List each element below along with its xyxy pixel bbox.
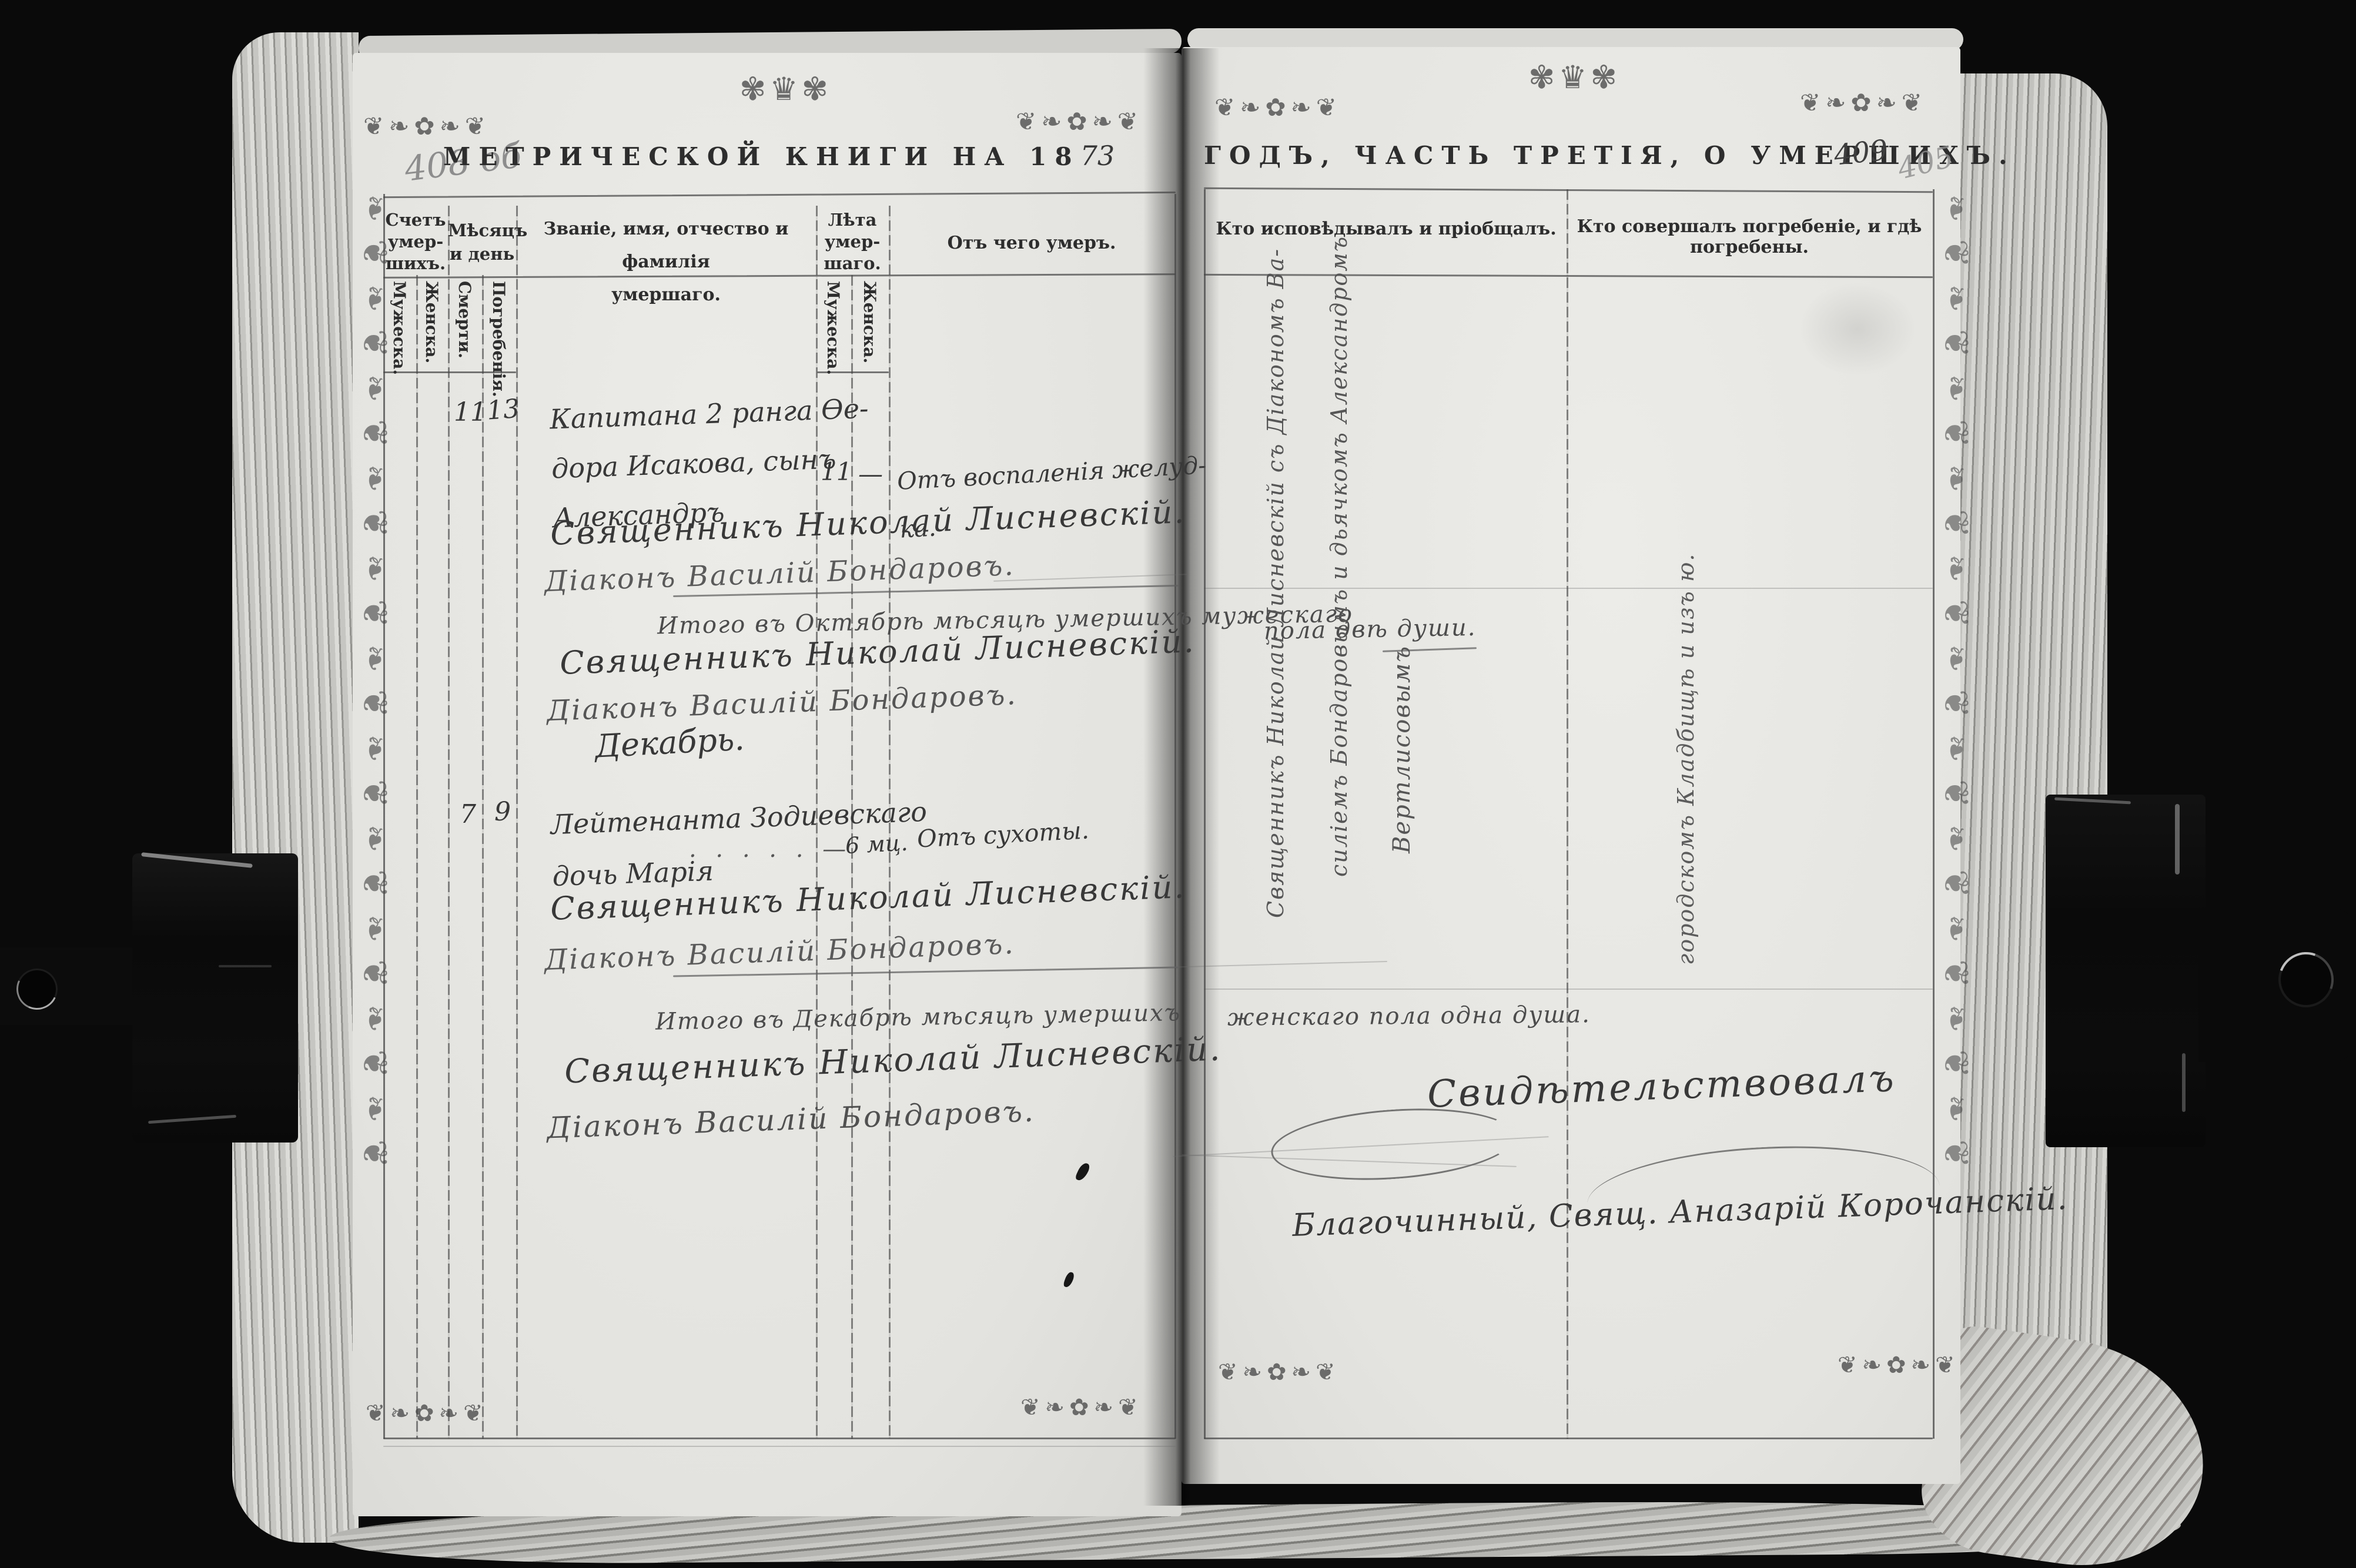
month-label-december: Декабрь. (594, 720, 745, 765)
summary-december-right: женскаго пола одна душа. (1227, 1001, 1591, 1031)
confession-note-line2: силіемъ Бондаровымъ и дьячкомъ Александр… (1326, 236, 1352, 877)
left-table-line-count-month (448, 206, 450, 1439)
col-header-count: Счетъ умер- шихъ. (383, 209, 448, 274)
right-table-bottom-rule (1204, 1438, 1933, 1439)
ornament-corner-bottom-right-right-page-icon: ❦❧✿❧❦ (1838, 1352, 1960, 1379)
entry1-burial-day: 13 (486, 394, 517, 425)
right-table-row-rule-2 (1204, 989, 1933, 990)
right-table-row-rule-1 (1204, 588, 1933, 589)
left-clamp-body (132, 853, 298, 1143)
col-header-cause: Отъ чего умеръ. (889, 233, 1174, 253)
col-header-age: Лѣта умер- шаго. (816, 209, 889, 274)
col-header-burial: Кто совершалъ погребеніе, и гдѣ погребен… (1575, 216, 1923, 257)
ornament-crown-left-icon: ✾♛✾ (739, 71, 832, 108)
book-gutter-shadow (1143, 48, 1220, 1506)
left-table-line-count-split (416, 275, 418, 1439)
metric-book-scan: ❦❧✿❧❦ ✾♛✾ ❦❧✿❧❦ ❧❦❧❦❧❦❧❦❧❦❧❦❧❦❧❦❧❦❧❦❧❦ ❦… (0, 0, 2356, 1568)
entry2-death-day: 7 (454, 799, 482, 829)
sub-header-count-female: Женска. (422, 281, 441, 363)
left-table-bottom-rule (383, 1438, 1176, 1439)
entry1-age-male: 11 (821, 457, 850, 486)
confession-note-line1: Священникъ Николай Лисневскій съ Діаконо… (1263, 248, 1289, 918)
bleedthrough-smudge (1799, 282, 1916, 376)
entry2-age-female: 6 мц. (845, 829, 916, 859)
right-clamp-glint-1 (2175, 804, 2180, 875)
ornament-corner-top-left-icon: ❦❧✿❧❦ (363, 112, 490, 140)
sub-header-age-female: Женска. (860, 281, 879, 363)
summary-october-right: пола двѣ души. (1264, 614, 1477, 645)
right-page-number-ink: 409 (1832, 133, 1889, 172)
confession-note-line3: Вертлисовымъ (1388, 645, 1415, 853)
col-header-name: Званіе, имя, отчество и фамилія умершаго… (516, 213, 816, 311)
ornament-corner-top-right-right-page-icon: ❦❧✿❧❦ (1800, 88, 1927, 117)
sub-header-count-male: Мужеска. (390, 281, 409, 375)
right-page-title: ГОДЪ, ЧАСТЬ ТРЕТІЯ, О УМЕРШИХЪ. (1204, 141, 1933, 170)
ornament-crown-right-icon: ✾♛✾ (1528, 59, 1621, 96)
sub-header-month-death: Смерти. (455, 281, 474, 359)
ornament-corner-bottom-right-icon: ❦❧✿❧❦ (1020, 1394, 1143, 1421)
entry2-burial-day: 9 (488, 797, 517, 827)
col-header-month: Мѣсяцъ и день (448, 219, 516, 266)
sub-header-age-male: Мужеска. (824, 281, 843, 375)
right-page (1182, 47, 1960, 1484)
left-table-line-month-split (482, 275, 484, 1439)
ornament-corner-bottom-left-right-page-icon: ❦❧✿❧❦ (1218, 1359, 1340, 1386)
left-page-title-printed: МЕТРИЧЕСКОЙ КНИГИ НА 18 (443, 142, 1080, 171)
ornament-corner-top-left-right-page-icon: ❦❧✿❧❦ (1214, 93, 1341, 122)
ornament-left-border-strip-icon: ❧❦❧❦❧❦❧❦❧❦❧❦❧❦❧❦❧❦❧❦❧❦ (355, 194, 395, 1184)
right-table-border-right (1933, 189, 1935, 1439)
left-table-border-left (383, 194, 385, 1439)
col-header-confession: Кто исповѣдывалъ и пріобщалъ. (1216, 219, 1557, 239)
left-table-bottom-rule-2 (383, 1446, 1176, 1447)
entry1-death-day: 11 (454, 397, 482, 427)
entry2-leader-dots: . . . . . — (689, 836, 852, 863)
ornament-corner-top-right-icon: ❦❧✿❧❦ (1016, 107, 1143, 136)
left-page-stack-edge (232, 32, 359, 1543)
right-page-stack-edge (1960, 73, 2107, 1484)
left-page-title: МЕТРИЧЕСКОЙ КНИГИ НА 1873 (388, 140, 1170, 172)
sub-header-month-burial: Погребенія. (489, 281, 508, 397)
ornament-right-border-strip-icon: ❧❦❧❦❧❦❧❦❧❦❧❦❧❦❧❦❧❦❧❦❧❦ (1936, 194, 1976, 1184)
left-page-title-year-handwritten: 73 (1080, 140, 1115, 172)
burial-place-note: городскомъ Кладбищѣ и изъ ю. (1673, 553, 1699, 965)
right-clamp-glint-2 (2182, 1053, 2186, 1112)
right-table-column-divider (1567, 189, 1568, 1439)
left-clamp-glint-mid (219, 965, 272, 967)
entry1-age-female: — (856, 460, 885, 488)
right-table-border-left (1204, 189, 1206, 1439)
left-table-border-right (1174, 194, 1176, 1439)
